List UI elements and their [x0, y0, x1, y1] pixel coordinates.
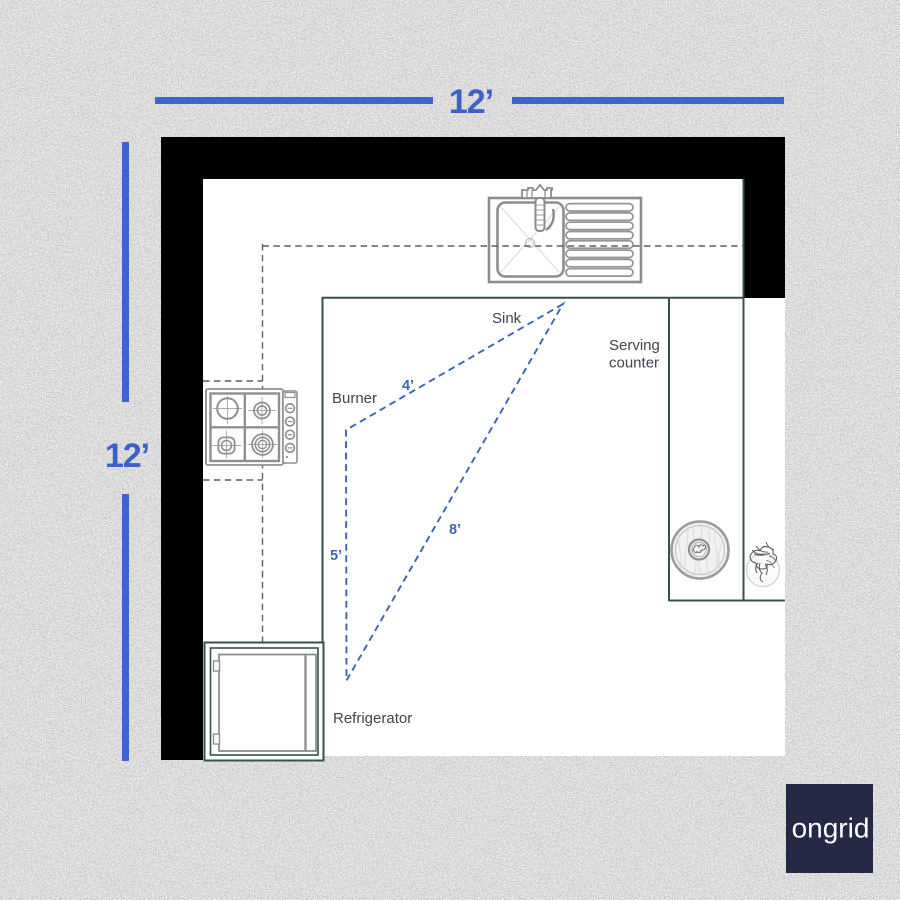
svg-text:Refrigerator: Refrigerator: [333, 710, 412, 727]
svg-text:12’: 12’: [449, 83, 493, 121]
svg-text:Serving: Serving: [609, 337, 660, 354]
svg-text:8’: 8’: [449, 522, 461, 538]
svg-text:ongrid: ongrid: [792, 813, 870, 844]
svg-text:Burner: Burner: [332, 390, 377, 407]
svg-text:12’: 12’: [105, 437, 149, 475]
svg-text:5’: 5’: [330, 548, 342, 564]
svg-text:4’: 4’: [402, 378, 414, 394]
svg-text:Sink: Sink: [492, 310, 522, 327]
svg-text:counter: counter: [609, 355, 659, 372]
